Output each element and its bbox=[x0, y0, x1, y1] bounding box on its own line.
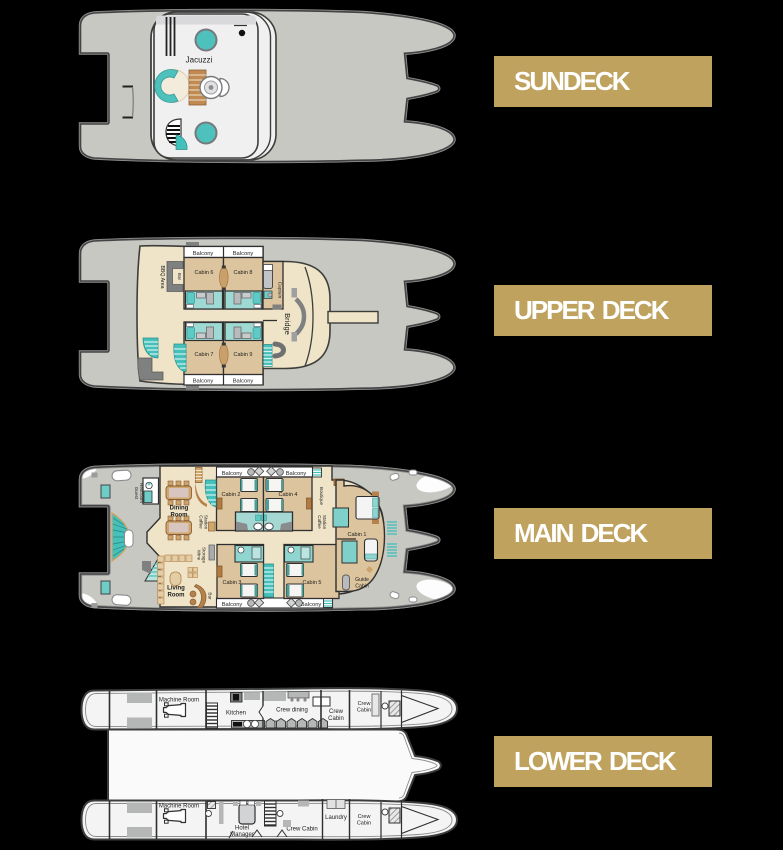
svg-text:Cabin 2: Cabin 2 bbox=[222, 492, 241, 498]
svg-text:Captain: Captain bbox=[277, 282, 283, 299]
svg-text:Cabin 1: Cabin 1 bbox=[348, 532, 367, 538]
svg-text:Balcony: Balcony bbox=[233, 379, 254, 385]
svg-text:Crew dining: Crew dining bbox=[276, 708, 308, 714]
svg-text:Balcony: Balcony bbox=[193, 379, 214, 385]
svg-text:Laundry: Laundry bbox=[325, 815, 347, 821]
svg-text:BBQ Area: BBQ Area bbox=[159, 265, 165, 288]
svg-text:Cabin: Cabin bbox=[355, 584, 369, 590]
svg-text:Balcony: Balcony bbox=[222, 471, 243, 477]
svg-text:Cabin 5: Cabin 5 bbox=[303, 580, 322, 586]
svg-text:Bridge: Bridge bbox=[283, 313, 292, 335]
svg-text:Balcony: Balcony bbox=[193, 251, 214, 257]
svg-text:Cabin 8: Cabin 8 bbox=[234, 270, 253, 276]
svg-text:Crew: Crew bbox=[329, 709, 344, 715]
svg-text:Crew Cabin: Crew Cabin bbox=[286, 827, 317, 833]
svg-text:Guest: Guest bbox=[134, 487, 139, 500]
svg-text:Bar: Bar bbox=[177, 273, 182, 281]
svg-text:Room: Room bbox=[171, 513, 188, 519]
svg-text:Cabin 7: Cabin 7 bbox=[195, 352, 214, 358]
svg-text:Balcony: Balcony bbox=[286, 471, 307, 477]
svg-text:Restroom: Restroom bbox=[139, 483, 144, 503]
svg-text:Manager: Manager bbox=[230, 832, 254, 838]
svg-text:Kitchen: Kitchen bbox=[226, 711, 246, 717]
svg-text:Balcony: Balcony bbox=[233, 251, 254, 257]
svg-text:Coffee: Coffee bbox=[317, 515, 322, 529]
svg-text:Living: Living bbox=[167, 586, 185, 592]
svg-text:Cabin 4: Cabin 4 bbox=[279, 492, 298, 498]
svg-text:Hotel: Hotel bbox=[235, 826, 249, 832]
svg-text:Dining: Dining bbox=[170, 506, 189, 512]
svg-text:Room: Room bbox=[168, 593, 185, 599]
svg-text:Cabin 6: Cabin 6 bbox=[195, 270, 214, 276]
svg-text:Wine: Wine bbox=[197, 550, 202, 561]
svg-text:Crew: Crew bbox=[358, 814, 371, 820]
svg-text:Cabin: Cabin bbox=[357, 708, 371, 714]
svg-text:Cabin: Cabin bbox=[328, 716, 344, 722]
svg-text:Cabin 9: Cabin 9 bbox=[234, 352, 253, 358]
svg-text:Cabin: Cabin bbox=[357, 821, 371, 827]
svg-text:Guide: Guide bbox=[355, 577, 369, 583]
svg-text:Cabin 3: Cabin 3 bbox=[223, 580, 242, 586]
svg-text:Boutique: Boutique bbox=[319, 487, 324, 506]
svg-text:Bar: Bar bbox=[208, 592, 213, 600]
svg-text:Storage: Storage bbox=[202, 547, 207, 564]
svg-text:Coffee: Coffee bbox=[199, 515, 204, 529]
svg-text:Station: Station bbox=[322, 515, 327, 530]
svg-text:Balcony: Balcony bbox=[222, 602, 243, 608]
svg-text:Jacuzzi: Jacuzzi bbox=[186, 56, 213, 65]
svg-text:Station: Station bbox=[204, 515, 209, 530]
svg-text:Crew: Crew bbox=[358, 701, 371, 707]
svg-text:Balcony: Balcony bbox=[301, 602, 322, 608]
